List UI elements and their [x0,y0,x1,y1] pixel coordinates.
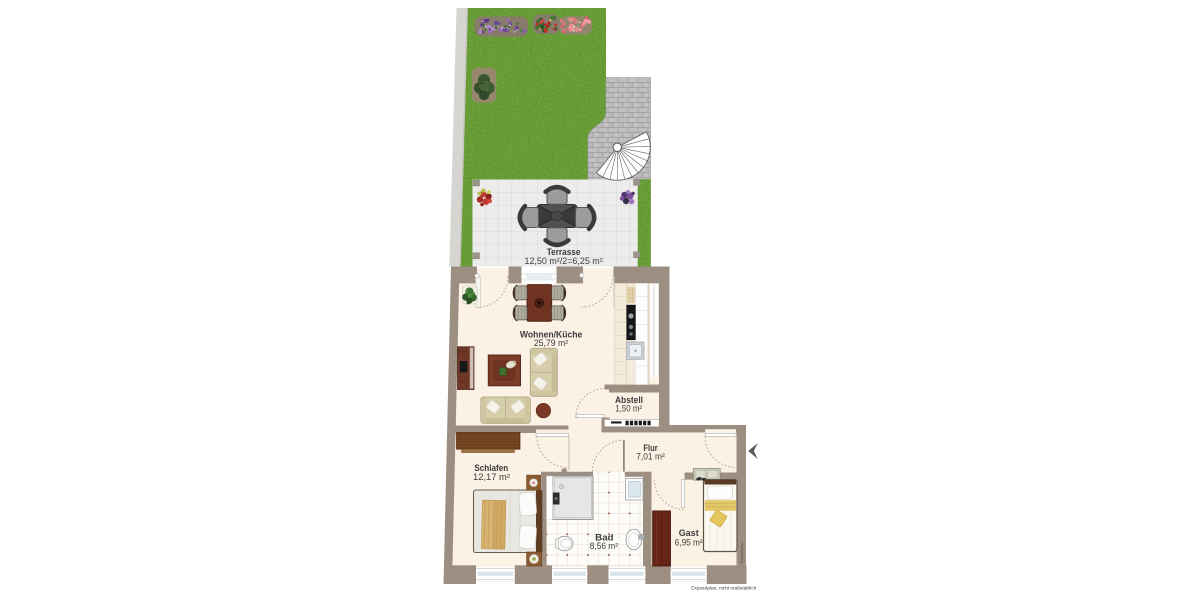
svg-text:Exposéplan: Exposéplan [740,543,744,563]
svg-text:6,95 m²: 6,95 m² [675,537,703,547]
svg-text:25,79 m²: 25,79 m² [534,338,568,348]
svg-text:12,17 m²: 12,17 m² [473,472,510,482]
svg-text:12,50 m²/2=6,25 m²: 12,50 m²/2=6,25 m² [525,256,603,266]
svg-text:8,56 m²: 8,56 m² [590,541,618,551]
svg-text:7,01 m²: 7,01 m² [636,452,665,462]
svg-text:Exposéplan, nicht maßstäblich: Exposéplan, nicht maßstäblich [691,586,756,592]
svg-text:1,50 m²: 1,50 m² [615,403,642,413]
